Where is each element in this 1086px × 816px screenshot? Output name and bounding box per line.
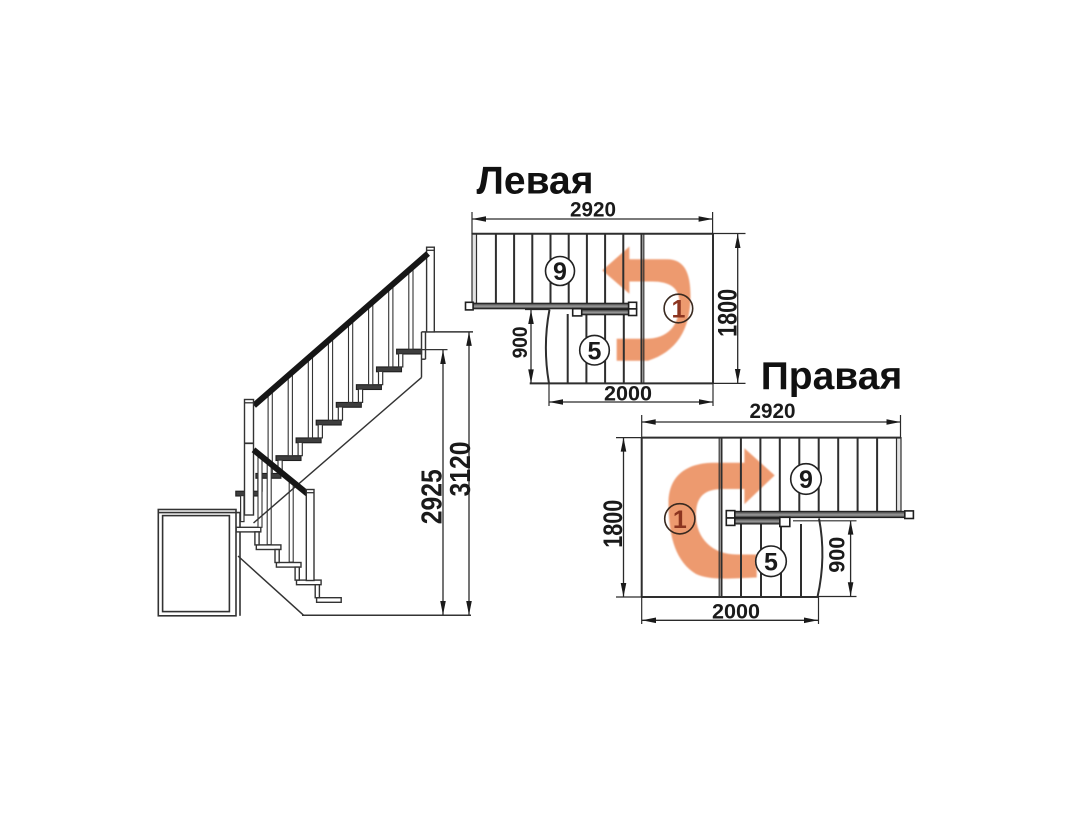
svg-text:2920: 2920 [570, 198, 616, 222]
svg-text:1800: 1800 [598, 500, 628, 548]
svg-text:1: 1 [673, 506, 687, 534]
svg-text:900: 900 [825, 537, 850, 573]
svg-text:2920: 2920 [750, 399, 796, 423]
svg-text:2000: 2000 [712, 599, 760, 623]
svg-text:2000: 2000 [604, 382, 652, 406]
svg-text:9: 9 [799, 466, 813, 494]
svg-text:9: 9 [553, 258, 567, 286]
svg-text:Правая: Правая [761, 355, 902, 398]
svg-text:Левая: Левая [477, 160, 594, 203]
svg-text:1: 1 [671, 296, 685, 324]
svg-text:5: 5 [764, 548, 778, 576]
svg-text:5: 5 [588, 337, 602, 365]
svg-text:1800: 1800 [712, 289, 742, 337]
svg-text:3120: 3120 [445, 442, 477, 497]
svg-text:900: 900 [509, 326, 532, 358]
svg-text:2925: 2925 [416, 469, 448, 524]
